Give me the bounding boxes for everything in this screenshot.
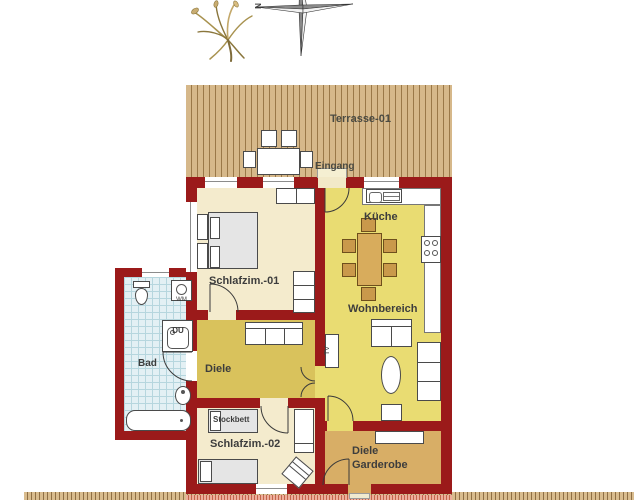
- burner: [432, 240, 438, 246]
- wardrobe-shelf: [276, 188, 315, 204]
- washing-machine-label: WM: [170, 297, 193, 303]
- wall-center-vertical: [315, 188, 325, 484]
- label-living: Wohnbereich: [348, 304, 417, 315]
- wall-bathroom-left: [115, 268, 124, 440]
- compass-rose: [250, 0, 360, 62]
- label-entrance: Eingang: [315, 162, 354, 172]
- entrance-door-opening: [318, 177, 346, 188]
- window-bathroom-north: [142, 268, 169, 277]
- label-bathroom: Bad: [138, 359, 157, 369]
- wall-bathroom-bottom: [115, 431, 197, 440]
- label-hallway: Diele: [205, 364, 231, 375]
- dining-chair: [342, 263, 356, 277]
- wall-bottom: [186, 484, 452, 494]
- hallway-sofa: [245, 322, 303, 345]
- label-bunk-bed: Stockbett: [213, 416, 249, 424]
- pillow: [200, 461, 212, 482]
- dining-chair: [383, 239, 397, 253]
- foundation-hatch: [186, 495, 452, 500]
- stove: [421, 236, 441, 263]
- burner: [432, 250, 438, 256]
- bath-sink-drain: [181, 390, 185, 394]
- plant-decoration: [186, 0, 258, 62]
- tv-label: TV: [324, 346, 331, 355]
- shower: [162, 320, 193, 352]
- floor-plan: N: [0, 0, 637, 500]
- bathroom-door-opening: [186, 351, 197, 381]
- wall-right: [441, 177, 452, 494]
- entry-shelf: [375, 431, 424, 444]
- nightstand: [197, 243, 208, 269]
- bath-sink: [175, 386, 191, 405]
- hallway-living-opening: [315, 366, 325, 398]
- label-kitchen: Küche: [364, 212, 398, 223]
- sofa: [371, 319, 412, 347]
- dining-chair: [361, 287, 376, 301]
- terrace-chair: [300, 151, 313, 168]
- dining-table: [357, 233, 382, 286]
- nightstand: [197, 214, 208, 240]
- window-bedroom1-north-1: [205, 177, 237, 188]
- cabinet: [293, 271, 315, 313]
- dining-chair: [383, 263, 397, 277]
- wall-hallway-bedroom2: [197, 398, 315, 408]
- label-bedroom1: Schlafzim.-01: [209, 276, 279, 287]
- pillow: [210, 217, 220, 239]
- terrace-chair: [243, 151, 256, 168]
- kitchen-sink: [366, 189, 402, 203]
- pillow: [210, 246, 220, 268]
- label-entry-hall-1: Diele: [352, 446, 378, 457]
- window-bedroom2-south: [256, 484, 287, 494]
- toilet: [133, 281, 150, 288]
- bedroom2-door-opening: [260, 398, 288, 408]
- main-entrance-doormat: [349, 493, 370, 499]
- window-bedroom1-west: [186, 202, 197, 272]
- burner: [424, 250, 430, 256]
- window-bedroom1-north-2: [263, 177, 294, 188]
- bathtub-drain: [180, 419, 183, 422]
- shower-label: DU: [166, 327, 190, 335]
- kitchen-counter-right: [424, 205, 441, 333]
- label-bedroom2: Schlafzim.-02: [210, 439, 280, 450]
- entryhall-door-opening: [327, 421, 353, 431]
- compass-north-label: N: [255, 3, 263, 9]
- terrace-chair: [281, 130, 297, 147]
- bedroom2-wardrobe: [294, 409, 314, 453]
- dining-chair: [342, 239, 356, 253]
- terrace-table: [257, 148, 300, 175]
- label-entry-hall-2: Garderobe: [352, 460, 408, 471]
- living-wardrobe: [417, 342, 441, 401]
- burner: [424, 240, 430, 246]
- bedroom1-door-opening: [208, 310, 236, 320]
- label-terrace: Terrasse-01: [330, 114, 391, 125]
- terrace-chair: [261, 130, 277, 147]
- coffee-table: [381, 356, 401, 394]
- window-kitchen-north: [364, 177, 399, 188]
- side-table: [381, 404, 402, 421]
